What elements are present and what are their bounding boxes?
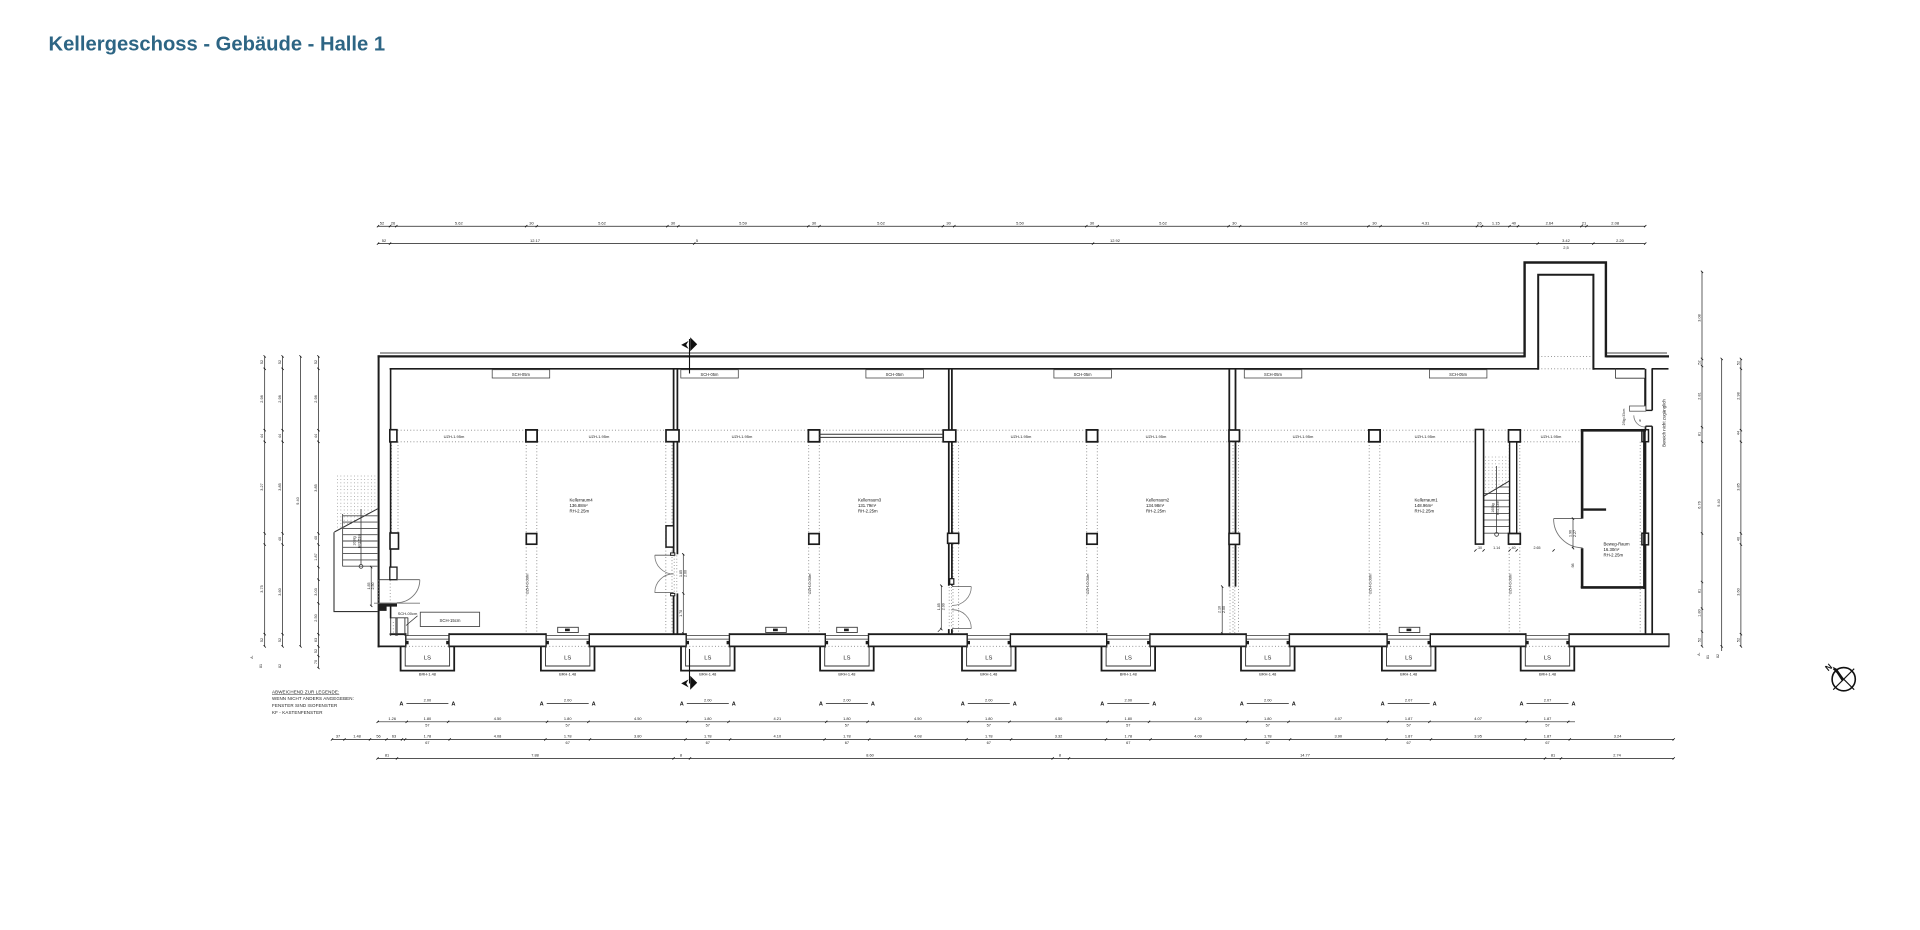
svg-text:Beweg-Raum: Beweg-Raum	[1604, 542, 1630, 547]
svg-text:UZH-0.00m: UZH-0.00m	[525, 573, 530, 594]
svg-text:RH-2.25m: RH-2.25m	[1604, 553, 1624, 558]
svg-text:SCH-05m: SCH-05m	[512, 372, 531, 377]
svg-text:134.98m²: 134.98m²	[1146, 503, 1165, 508]
svg-text:A: A	[1519, 701, 1523, 707]
svg-text:2.00: 2.00	[683, 570, 687, 577]
svg-text:UZH-1.95m: UZH-1.95m	[589, 434, 610, 439]
svg-text:WENN NICHT ANDERS ANGEGEBEN:: WENN NICHT ANDERS ANGEGEBEN:	[272, 696, 354, 701]
svg-text:5.62: 5.62	[455, 220, 464, 225]
svg-text:82: 82	[1716, 654, 1720, 658]
svg-text:LS: LS	[564, 655, 571, 661]
svg-text:70: 70	[314, 660, 318, 664]
svg-text:40: 40	[1512, 220, 1517, 225]
svg-text:Kellerraum3: Kellerraum3	[858, 498, 882, 503]
svg-text:57: 57	[1126, 723, 1130, 728]
svg-text:67: 67	[566, 740, 570, 745]
svg-text:1.87: 1.87	[1405, 716, 1413, 721]
svg-text:52: 52	[314, 360, 318, 364]
svg-text:2.00: 2.00	[1222, 606, 1226, 613]
svg-text:A: A	[961, 701, 965, 707]
svg-text:131.79m²: 131.79m²	[858, 503, 877, 508]
svg-text:26: 26	[391, 220, 396, 225]
svg-text:UZH-1.95m: UZH-1.95m	[1415, 434, 1436, 439]
svg-text:3.60: 3.60	[1736, 588, 1740, 595]
svg-text:.40: .40	[1511, 546, 1516, 550]
svg-text:57: 57	[987, 723, 991, 728]
svg-text:52: 52	[380, 220, 385, 225]
svg-text:52: 52	[1697, 360, 1701, 364]
svg-text:UZH-1.95m: UZH-1.95m	[732, 434, 753, 439]
svg-text:1.78: 1.78	[564, 734, 572, 739]
svg-text:37: 37	[336, 734, 340, 739]
svg-text:30: 30	[1090, 220, 1095, 225]
svg-text:2.00: 2.00	[1264, 697, 1272, 702]
svg-text:A: A	[819, 701, 823, 707]
svg-text:5.62: 5.62	[1300, 220, 1309, 225]
svg-text:2.07: 2.07	[1405, 697, 1413, 702]
svg-text:4.21: 4.21	[774, 716, 782, 721]
svg-text:5.62: 5.62	[877, 220, 886, 225]
svg-text:A: A	[871, 701, 875, 707]
svg-text:SCH-05m: SCH-05m	[1264, 372, 1283, 377]
svg-text:1.80: 1.80	[985, 716, 993, 721]
svg-text:A: A	[1381, 701, 1385, 707]
svg-text:2.27: 2.27	[1573, 530, 1577, 537]
svg-text:RH-2.25m: RH-2.25m	[1146, 509, 1166, 514]
svg-text:1.15: 1.15	[1492, 220, 1501, 225]
svg-text:2.98: 2.98	[278, 395, 282, 402]
svg-text:14.77: 14.77	[1300, 753, 1310, 758]
svg-text:A: A	[1240, 701, 1244, 707]
svg-text:1.78: 1.78	[1264, 734, 1272, 739]
svg-text:5.62: 5.62	[598, 220, 607, 225]
svg-text:2,50: 2,50	[371, 583, 375, 590]
svg-text:67: 67	[987, 740, 991, 745]
svg-text:52: 52	[260, 360, 264, 364]
svg-text:4.10: 4.10	[774, 734, 782, 739]
svg-text:26: 26	[1477, 220, 1482, 225]
svg-text:4.07: 4.07	[1334, 716, 1342, 721]
svg-text:81: 81	[1706, 655, 1710, 659]
svg-text:52: 52	[278, 360, 282, 364]
svg-text:10Stg: 10Stg	[353, 536, 357, 545]
svg-text:1.78: 1.78	[1125, 734, 1133, 739]
svg-text:8: 8	[1059, 753, 1061, 758]
svg-text:3.60: 3.60	[278, 588, 282, 595]
svg-text:SCH-00cm: SCH-00cm	[398, 611, 418, 616]
svg-text:RH-2.25m: RH-2.25m	[570, 509, 590, 514]
svg-text:N: N	[1823, 661, 1834, 673]
svg-text:40: 40	[278, 537, 282, 541]
svg-text:44: 44	[278, 434, 282, 438]
svg-text:UZH-0.00m: UZH-0.00m	[807, 573, 812, 594]
svg-text:1.96: 1.96	[1569, 530, 1573, 537]
svg-text:1.48: 1.48	[353, 734, 361, 739]
svg-text:30: 30	[1232, 220, 1237, 225]
svg-text:52: 52	[278, 638, 282, 642]
svg-text:5: 5	[696, 238, 699, 243]
svg-text:Bereich nicht zugänglich: Bereich nicht zugänglich	[1662, 399, 1667, 447]
svg-text:2.65: 2.65	[1534, 546, 1541, 550]
svg-text:A: A	[592, 701, 596, 707]
svg-text:3.75: 3.75	[260, 585, 264, 592]
svg-text:LS: LS	[1264, 655, 1271, 661]
svg-text:1.85: 1.85	[367, 583, 371, 590]
svg-text:2.00: 2.00	[941, 603, 945, 610]
svg-text:1.80: 1.80	[843, 716, 851, 721]
svg-text:7.88: 7.88	[531, 753, 539, 758]
svg-text:BRH-1.48: BRH-1.48	[1259, 672, 1276, 677]
svg-text:A: A	[1571, 701, 1575, 707]
svg-text:1.87: 1.87	[1544, 734, 1552, 739]
svg-text:UZH-1.95m: UZH-1.95m	[1011, 434, 1032, 439]
svg-text:2.00: 2.00	[1125, 697, 1133, 702]
svg-text:57: 57	[1407, 723, 1411, 728]
svg-text:2Stg=33cm: 2Stg=33cm	[1622, 408, 1626, 425]
svg-text:57: 57	[1545, 723, 1549, 728]
svg-text:RH-2.25m: RH-2.25m	[858, 509, 878, 514]
svg-text:UZH-0.00m: UZH-0.00m	[1508, 573, 1513, 594]
svg-text:A: A	[399, 701, 403, 707]
svg-text:A.: A.	[250, 655, 254, 658]
svg-text:A: A	[451, 701, 455, 707]
svg-text:1.85: 1.85	[937, 603, 941, 610]
svg-text:1.80: 1.80	[1264, 716, 1272, 721]
svg-text:67: 67	[1266, 740, 1270, 745]
svg-text:LS: LS	[1544, 655, 1551, 661]
svg-text:81: 81	[1551, 753, 1555, 758]
svg-text:3.90: 3.90	[1334, 734, 1342, 739]
svg-text:1.85: 1.85	[679, 570, 683, 577]
svg-text:1.78: 1.78	[843, 734, 851, 739]
svg-text:63: 63	[392, 734, 396, 739]
svg-text:57: 57	[845, 723, 849, 728]
svg-text:3.32: 3.32	[1055, 734, 1063, 739]
svg-text:UZH-0.00m: UZH-0.00m	[1368, 573, 1373, 594]
svg-text:3.80: 3.80	[634, 734, 642, 739]
svg-text:57: 57	[1266, 723, 1270, 728]
svg-text:81: 81	[1697, 432, 1701, 436]
svg-text:12.17: 12.17	[530, 238, 541, 243]
svg-text:A: A	[1013, 701, 1017, 707]
svg-text:H=2,53m: H=2,53m	[357, 534, 361, 548]
svg-text:3.95: 3.95	[1474, 734, 1482, 739]
svg-text:4.50: 4.50	[634, 716, 642, 721]
svg-text:UZH-0.00m: UZH-0.00m	[1085, 573, 1090, 594]
svg-text:SCH-05m: SCH-05m	[1074, 372, 1093, 377]
svg-text:63: 63	[314, 638, 318, 642]
svg-text:H=2,53m: H=2,53m	[1496, 501, 1500, 515]
svg-text:Kellerraum4: Kellerraum4	[570, 498, 594, 503]
svg-text:52: 52	[1736, 361, 1740, 365]
svg-text:4.07: 4.07	[1474, 716, 1482, 721]
svg-text:30: 30	[1372, 220, 1377, 225]
svg-text:A: A	[1433, 701, 1437, 707]
svg-text:3.42: 3.42	[1562, 238, 1571, 243]
svg-text:UZH-1.95m: UZH-1.95m	[1541, 434, 1562, 439]
svg-text:KF - KASTENFENSTER: KF - KASTENFENSTER	[272, 710, 323, 715]
svg-text:52: 52	[382, 238, 387, 243]
svg-text:A: A	[1292, 701, 1296, 707]
svg-text:UZH-1.95m: UZH-1.95m	[444, 434, 465, 439]
svg-text:A: A	[1100, 701, 1104, 707]
svg-text:81: 81	[259, 664, 263, 668]
svg-text:UZH-1.95m: UZH-1.95m	[1293, 434, 1314, 439]
svg-text:67: 67	[1407, 740, 1411, 745]
svg-text:A: A	[680, 701, 684, 707]
svg-text:BRH-1.48: BRH-1.48	[980, 672, 997, 677]
svg-text:16.30m²: 16.30m²	[1604, 547, 1620, 552]
svg-text:4.31: 4.31	[1422, 220, 1431, 225]
svg-text:1.80: 1.80	[1125, 716, 1133, 721]
svg-text:1.26: 1.26	[388, 716, 396, 721]
svg-text:52: 52	[260, 638, 264, 642]
svg-text:30: 30	[812, 220, 817, 225]
svg-text:LS: LS	[985, 655, 992, 661]
svg-text:3.27: 3.27	[260, 483, 264, 490]
svg-text:A: A	[1152, 701, 1156, 707]
svg-text:67: 67	[1545, 740, 1549, 745]
svg-text:2.98: 2.98	[1736, 392, 1740, 399]
svg-text:A: A	[540, 701, 544, 707]
svg-text:2.00: 2.00	[985, 697, 993, 702]
svg-text:4.20: 4.20	[1194, 716, 1202, 721]
svg-text:LS: LS	[1405, 655, 1412, 661]
svg-text:1.78: 1.78	[704, 734, 712, 739]
svg-text:2.64: 2.64	[1546, 220, 1555, 225]
svg-text:1.14: 1.14	[1493, 546, 1500, 550]
svg-text:8.60: 8.60	[866, 753, 874, 758]
svg-text:UZH-1.95m: UZH-1.95m	[1146, 434, 1167, 439]
svg-text:67: 67	[845, 740, 849, 745]
svg-text:4.50: 4.50	[1055, 716, 1063, 721]
svg-text:67: 67	[706, 740, 710, 745]
svg-text:44: 44	[1736, 431, 1740, 435]
svg-text:4.09: 4.09	[1194, 734, 1202, 739]
svg-text:LS: LS	[424, 655, 431, 661]
svg-text:BRH-1.48: BRH-1.48	[838, 672, 855, 677]
svg-text:ø: ø	[1638, 419, 1642, 422]
svg-text:2.74: 2.74	[1613, 753, 1621, 758]
svg-text:2.00: 2.00	[843, 697, 851, 702]
svg-text:SCH-05m: SCH-05m	[1449, 372, 1468, 377]
svg-text:BRH-1.48: BRH-1.48	[699, 672, 716, 677]
svg-text:9.40: 9.40	[296, 497, 300, 504]
svg-text:12.92: 12.92	[1110, 238, 1121, 243]
svg-text:8: 8	[680, 753, 682, 758]
svg-text:2.10: 2.10	[1218, 606, 1222, 613]
svg-text:Kellerraum2: Kellerraum2	[1146, 498, 1170, 503]
svg-text:40: 40	[1736, 537, 1740, 541]
svg-text:4.50: 4.50	[494, 716, 502, 721]
svg-text:4.08: 4.08	[914, 734, 922, 739]
svg-text:.30: .30	[1477, 546, 1482, 550]
svg-text:6.76: 6.76	[1697, 501, 1701, 508]
svg-text:2.07: 2.07	[1544, 697, 1552, 702]
svg-text:2.50: 2.50	[314, 614, 318, 621]
svg-text:.98: .98	[1571, 564, 1575, 569]
svg-text:LS: LS	[843, 655, 850, 661]
svg-text:BRH-1.48: BRH-1.48	[559, 672, 576, 677]
svg-text:3.03: 3.03	[314, 588, 318, 595]
svg-text:2,5: 2,5	[1563, 245, 1569, 250]
svg-text:21: 21	[1582, 220, 1587, 225]
svg-text:RH-2.25m: RH-2.25m	[1415, 509, 1435, 514]
svg-text:1.80: 1.80	[424, 716, 432, 721]
svg-text:3.85: 3.85	[314, 484, 318, 491]
svg-text:Kellergeschoss - Gebäude - Hal: Kellergeschoss - Gebäude - Halle 1	[49, 34, 386, 56]
svg-text:30: 30	[946, 220, 951, 225]
svg-text:1.78: 1.78	[424, 734, 432, 739]
svg-text:2.00: 2.00	[424, 697, 432, 702]
svg-text:5.50: 5.50	[1016, 220, 1025, 225]
svg-text:2.98: 2.98	[260, 395, 264, 402]
svg-text:5.62: 5.62	[1159, 220, 1168, 225]
svg-text:FENSTER SIND ISOFENSTER: FENSTER SIND ISOFENSTER	[272, 703, 338, 708]
svg-text:136.88m²: 136.88m²	[570, 503, 589, 508]
svg-text:3.24: 3.24	[1614, 734, 1622, 739]
svg-text:1.87: 1.87	[1405, 734, 1413, 739]
svg-text:81: 81	[385, 753, 389, 758]
svg-text:2.00: 2.00	[704, 697, 712, 702]
svg-text:44: 44	[260, 434, 264, 438]
svg-text:LS: LS	[1125, 655, 1132, 661]
svg-text:1.87: 1.87	[314, 553, 318, 560]
svg-text:67: 67	[1126, 740, 1130, 745]
svg-text:3.08: 3.08	[1697, 314, 1701, 321]
svg-text:2.20: 2.20	[1616, 238, 1625, 243]
svg-text:Kellerraum1: Kellerraum1	[1415, 498, 1439, 503]
svg-text:67: 67	[425, 740, 429, 745]
svg-text:52: 52	[1736, 638, 1740, 642]
svg-text:57: 57	[425, 723, 429, 728]
svg-text:52: 52	[1697, 638, 1701, 642]
svg-text:SCH-05m: SCH-05m	[701, 372, 720, 377]
svg-text:2.98: 2.98	[314, 395, 318, 402]
svg-text:3.85: 3.85	[278, 483, 282, 490]
svg-text:SCH-15cm: SCH-15cm	[439, 618, 460, 623]
svg-text:BRH-1.48: BRH-1.48	[419, 672, 436, 677]
svg-text:82: 82	[278, 664, 282, 668]
svg-text:16Stg: 16Stg	[1491, 503, 1495, 512]
svg-text:1.87: 1.87	[1544, 716, 1552, 721]
svg-text:1.78: 1.78	[679, 610, 683, 617]
svg-text:A: A	[732, 701, 736, 707]
svg-text:1.80: 1.80	[1697, 609, 1701, 616]
svg-text:40: 40	[314, 536, 318, 540]
svg-text:A.: A.	[1697, 652, 1701, 655]
svg-text:BRH-1.48: BRH-1.48	[1400, 672, 1417, 677]
svg-text:ABWEICHEND ZUR LEGENDE:: ABWEICHEND ZUR LEGENDE:	[272, 689, 339, 694]
svg-text:52: 52	[314, 649, 318, 653]
svg-text:1.80: 1.80	[564, 716, 572, 721]
svg-text:5.59: 5.59	[739, 220, 748, 225]
svg-text:81: 81	[1697, 589, 1701, 593]
svg-text:SCH-05m: SCH-05m	[886, 372, 905, 377]
svg-text:4.50: 4.50	[914, 716, 922, 721]
svg-text:BRH-1.48: BRH-1.48	[1539, 672, 1556, 677]
svg-text:56: 56	[376, 734, 380, 739]
svg-text:1.78: 1.78	[985, 734, 993, 739]
svg-text:148.96m²: 148.96m²	[1415, 503, 1434, 508]
svg-text:4.08: 4.08	[494, 734, 502, 739]
svg-text:30: 30	[529, 220, 534, 225]
svg-text:2.08: 2.08	[1611, 220, 1620, 225]
svg-text:1.80: 1.80	[704, 716, 712, 721]
svg-text:57: 57	[566, 723, 570, 728]
svg-text:9.40: 9.40	[1717, 499, 1721, 506]
svg-text:3.85: 3.85	[1736, 483, 1740, 490]
svg-text:44: 44	[314, 434, 318, 438]
svg-text:2.81: 2.81	[1697, 392, 1701, 399]
svg-text:30: 30	[671, 220, 676, 225]
svg-text:LS: LS	[704, 655, 711, 661]
svg-text:BRH-1.48: BRH-1.48	[1120, 672, 1137, 677]
svg-text:57: 57	[706, 723, 710, 728]
svg-text:2.00: 2.00	[564, 697, 572, 702]
